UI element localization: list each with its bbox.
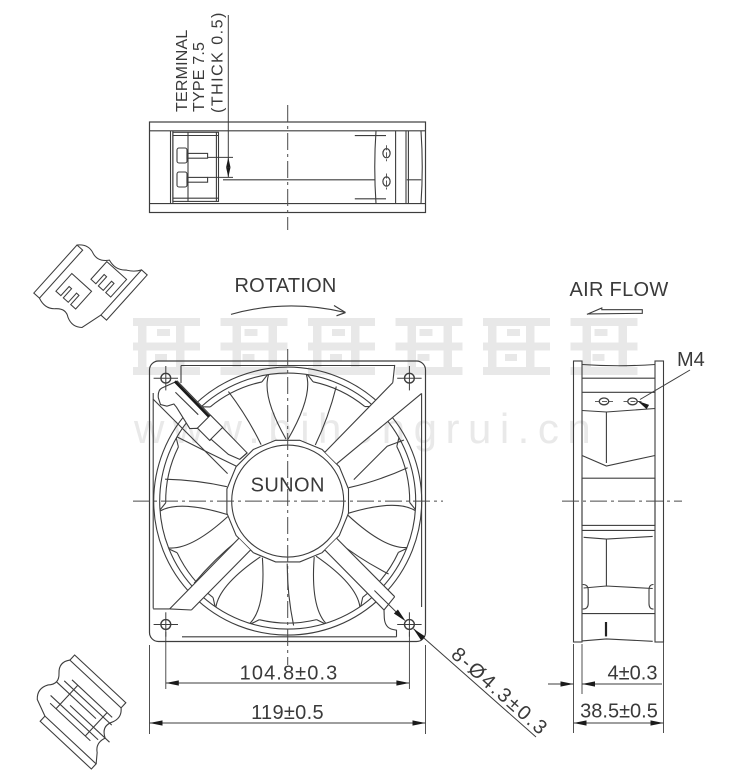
svg-text:TERMINAL: TERMINAL (174, 30, 191, 113)
svg-text:SUNON: SUNON (251, 475, 325, 497)
svg-text:4±0.3: 4±0.3 (608, 663, 658, 685)
svg-text:119±0.5: 119±0.5 (251, 702, 324, 724)
svg-text:104.8±0.3: 104.8±0.3 (240, 663, 339, 685)
svg-text:TYPE 7.5: TYPE 7.5 (191, 42, 208, 112)
svg-text:(THICK 0.5): (THICK 0.5) (210, 11, 227, 113)
svg-text:M4: M4 (677, 349, 705, 371)
svg-text:AIR FLOW: AIR FLOW (569, 279, 668, 301)
svg-text:ROTATION: ROTATION (235, 275, 337, 297)
svg-text:38.5±0.5: 38.5±0.5 (580, 701, 658, 723)
